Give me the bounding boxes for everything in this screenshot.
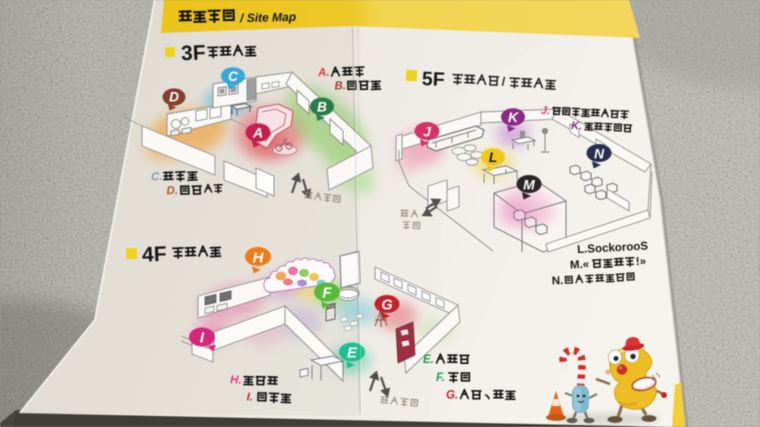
svg-text:5F: 5F [421,68,445,91]
svg-text:G.: G. [446,390,458,402]
svg-text:E.: E. [423,354,434,366]
svg-text:M.«: M.« [570,259,590,272]
svg-text:!»: !» [636,256,647,269]
svg-text:F.: F. [436,372,445,384]
svg-text:N.: N. [551,275,563,288]
svg-text:H: H [253,250,265,267]
svg-text:N: N [594,146,605,162]
svg-text:C.: C. [151,171,163,183]
svg-text:4F: 4F [142,243,167,267]
svg-text:E: E [347,345,358,362]
svg-text:/ Site Map: / Site Map [239,10,296,25]
svg-text:A: A [252,125,263,141]
svg-text:D.: D. [166,185,178,197]
svg-text:D: D [169,90,179,105]
svg-text:K: K [508,109,519,125]
svg-text:J: J [423,124,432,140]
svg-text:C: C [228,69,238,84]
svg-text:J.: J. [541,105,551,117]
svg-text:B: B [317,100,327,115]
svg-text:G: G [381,298,392,314]
svg-text:3F: 3F [181,41,206,65]
svg-text:M: M [523,177,535,193]
svg-text:A.: A. [317,67,330,79]
svg-text:I.: I. [246,391,253,403]
svg-text:K.: K. [571,120,583,133]
svg-text:B.: B. [334,80,346,92]
svg-text:F: F [322,285,332,302]
svg-text:L: L [489,149,498,165]
svg-text:H.: H. [230,374,242,386]
